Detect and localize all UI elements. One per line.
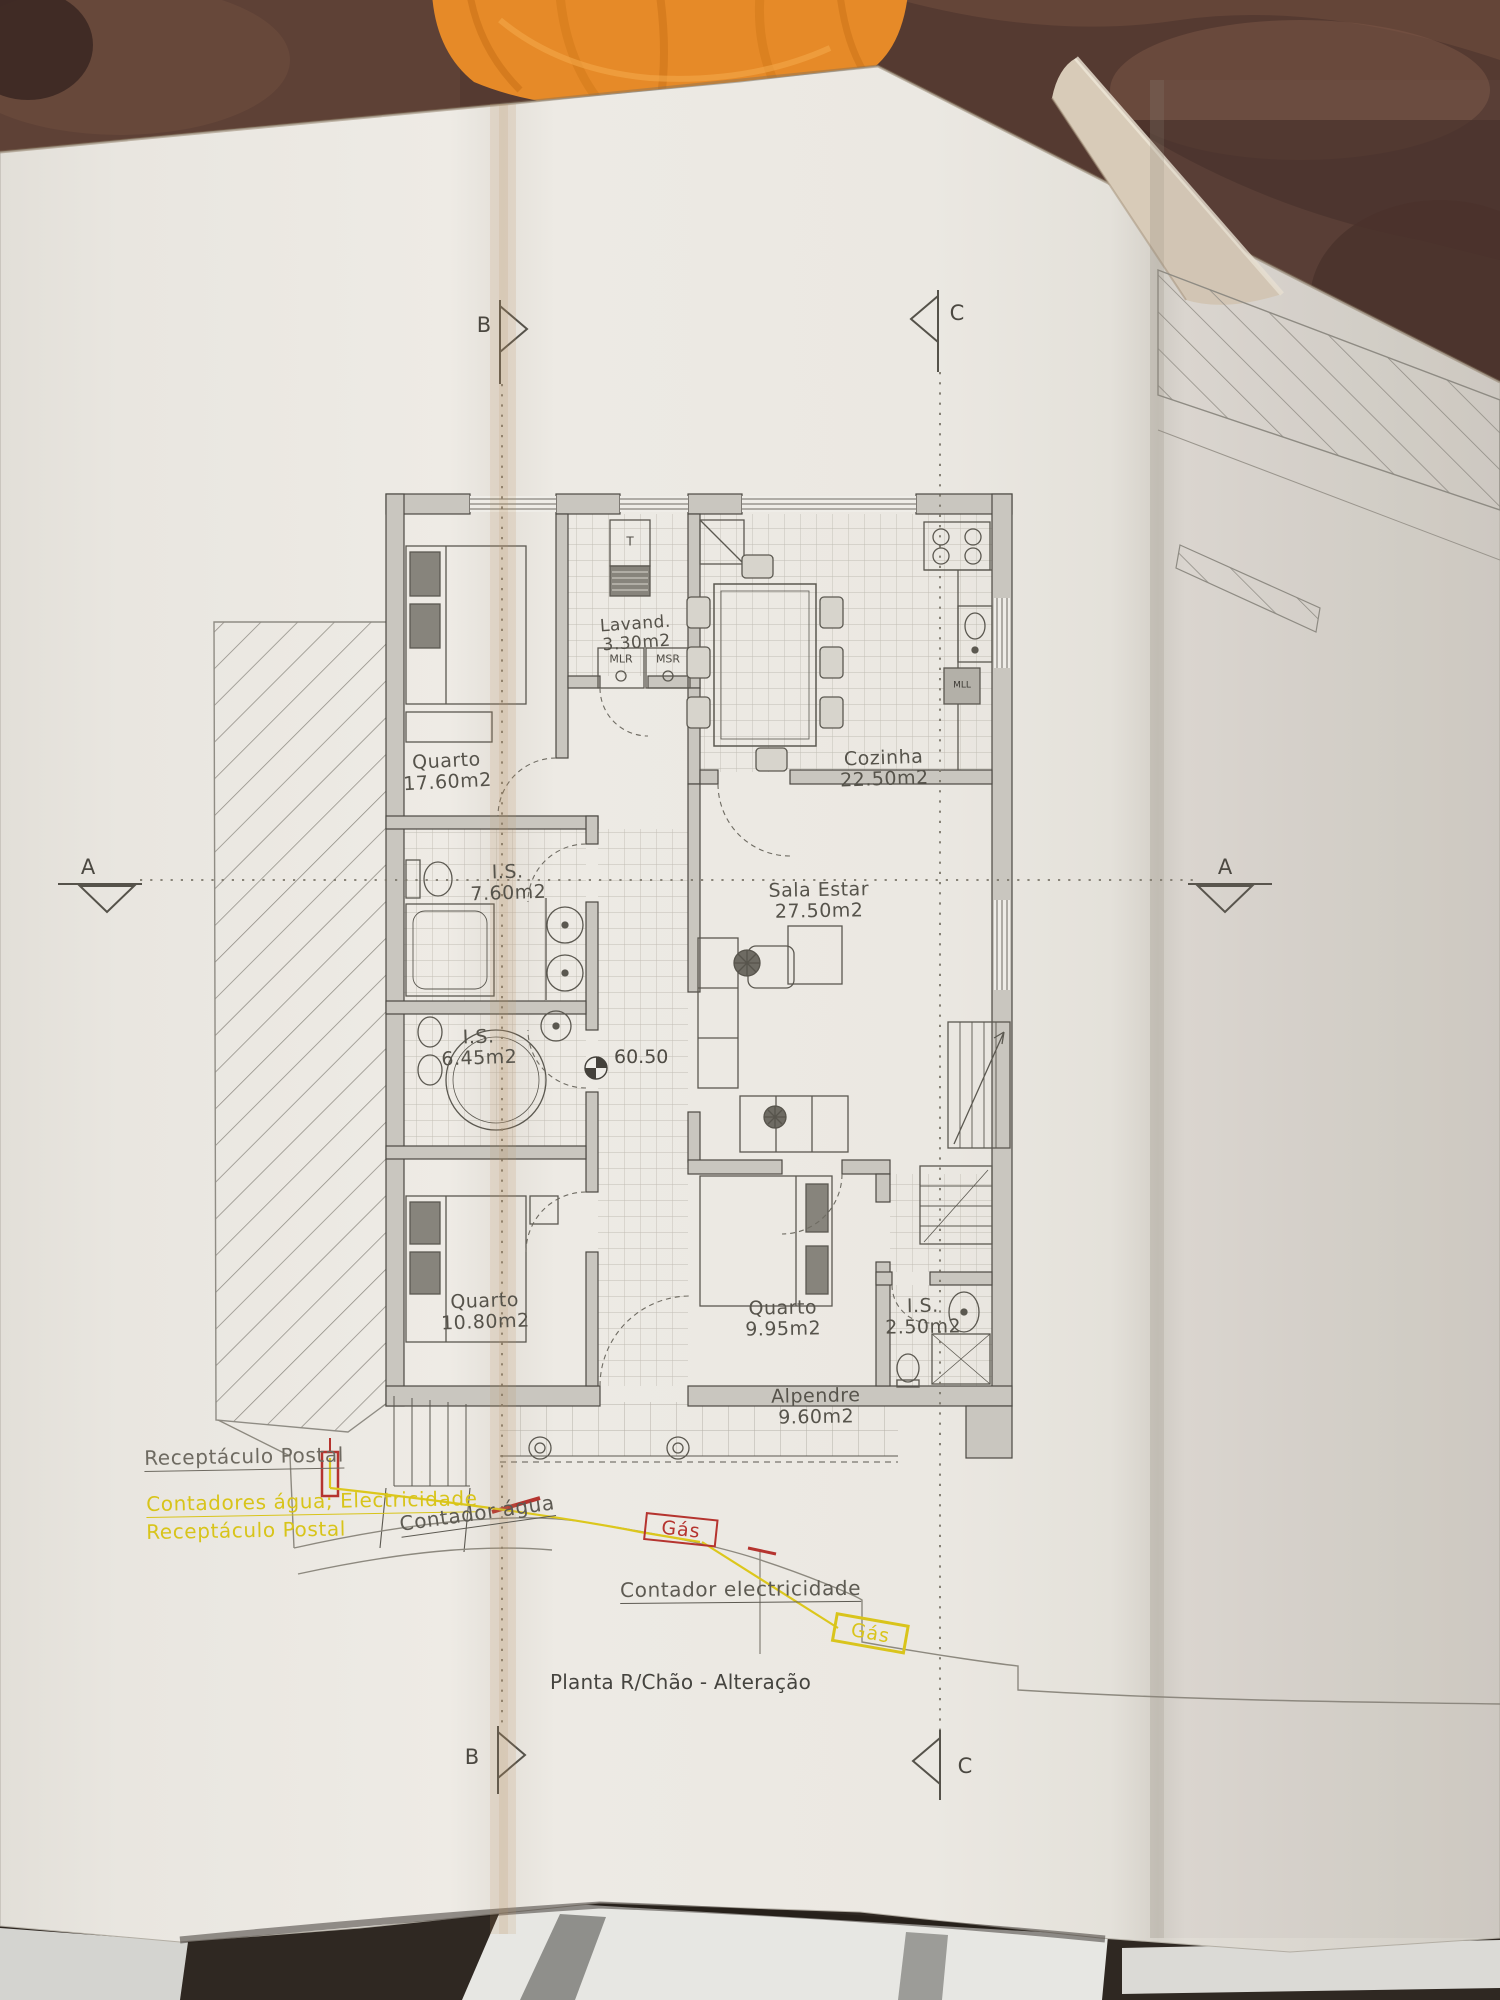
room-label-sala-estar: Sala Estar 27.50m2 <box>768 879 869 923</box>
annotation-postal-black: Receptáculo Postal <box>144 1443 344 1472</box>
floor-plan-drawing <box>0 0 1500 2000</box>
level-marker-icon <box>585 1057 607 1079</box>
annotation-electric-meter: Contador electricidade <box>620 1576 861 1604</box>
drawing-title: Planta R/Chão - Alteração <box>550 1670 811 1694</box>
section-letter-a-left: A <box>81 855 95 879</box>
section-letter-b-top: B <box>477 313 491 337</box>
level-marker-value: 60.50 <box>614 1046 668 1068</box>
room-label-quarto-995: Quarto 9.95m2 <box>745 1297 822 1340</box>
water-heater-label: T <box>626 537 633 548</box>
section-letter-c-top: C <box>950 301 965 325</box>
room-label-alpendre: Alpendre 9.60m2 <box>771 1385 861 1429</box>
dryer-label: MSR <box>656 654 680 665</box>
dishwasher-label: MLL <box>953 681 971 692</box>
section-letter-a-right: A <box>1218 855 1232 879</box>
room-label-lavandaria: Lavand. 3.30m2 <box>599 613 672 656</box>
room-label-quarto-1080: Quarto 10.80m2 <box>440 1289 530 1334</box>
section-letter-c-bottom: C <box>958 1754 973 1778</box>
washer-label: MLR <box>609 654 632 665</box>
room-label-quarto-1760: Quarto 17.60m2 <box>402 749 493 796</box>
floor-plan-photo: Quarto 17.60m2 Lavand. 3.30m2 Cozinha 22… <box>0 0 1500 2000</box>
section-letter-b-bottom: B <box>465 1745 479 1769</box>
room-label-cozinha: Cozinha 22.50m2 <box>839 746 929 791</box>
room-label-is-250: I.S. 2.50m2 <box>885 1295 962 1338</box>
room-label-is-760: I.S. 7.60m2 <box>469 861 546 906</box>
room-label-is-645: I.S. 6.45m2 <box>440 1026 517 1071</box>
annotation-postal-yellow: Receptáculo Postal <box>146 1517 346 1544</box>
